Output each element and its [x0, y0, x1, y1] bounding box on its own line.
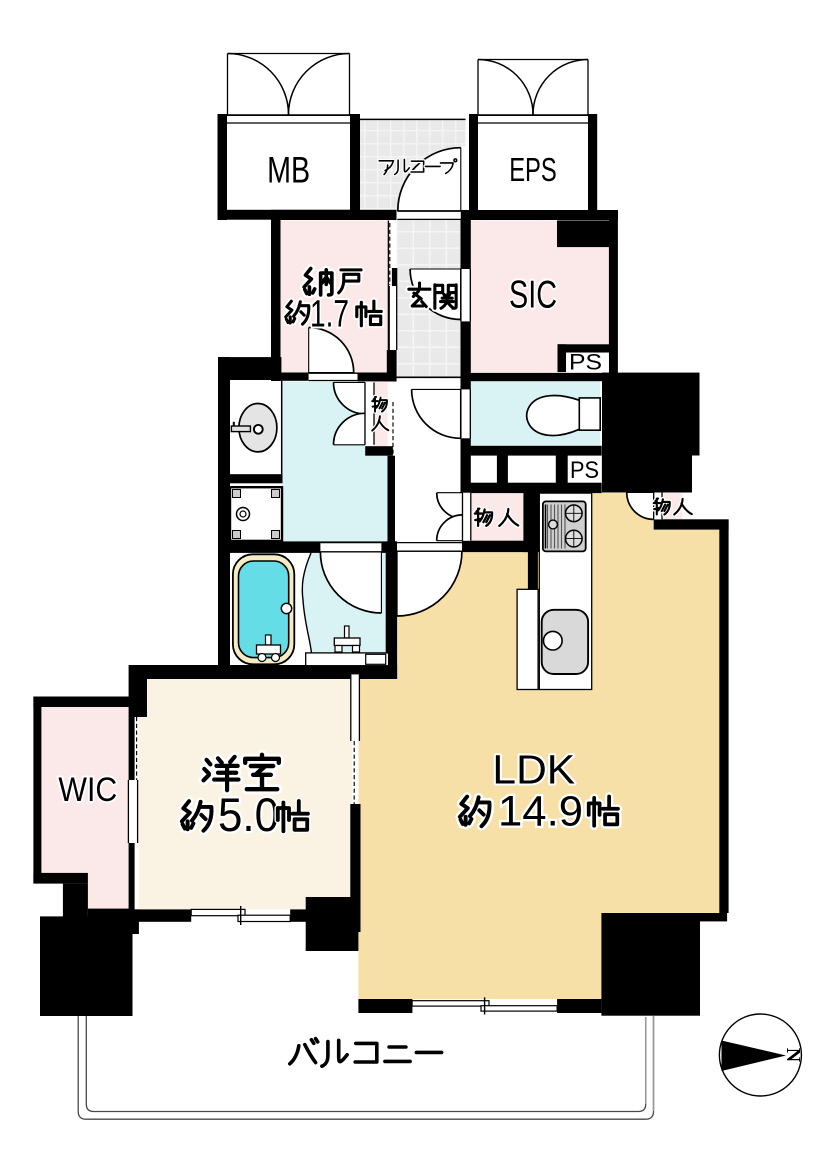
svg-text:14.9: 14.9: [498, 788, 583, 835]
svg-text:N: N: [782, 1048, 804, 1063]
svg-text:1.7: 1.7: [310, 294, 349, 336]
svg-text:EPS: EPS: [509, 152, 557, 189]
svg-text:SIC: SIC: [509, 274, 557, 317]
svg-text:MB: MB: [267, 150, 310, 191]
svg-text:PS: PS: [569, 350, 602, 375]
svg-text:WIC: WIC: [58, 771, 117, 809]
svg-text:5.0: 5.0: [218, 788, 279, 841]
svg-text:PS: PS: [570, 457, 599, 484]
svg-text:LDK: LDK: [492, 747, 575, 793]
